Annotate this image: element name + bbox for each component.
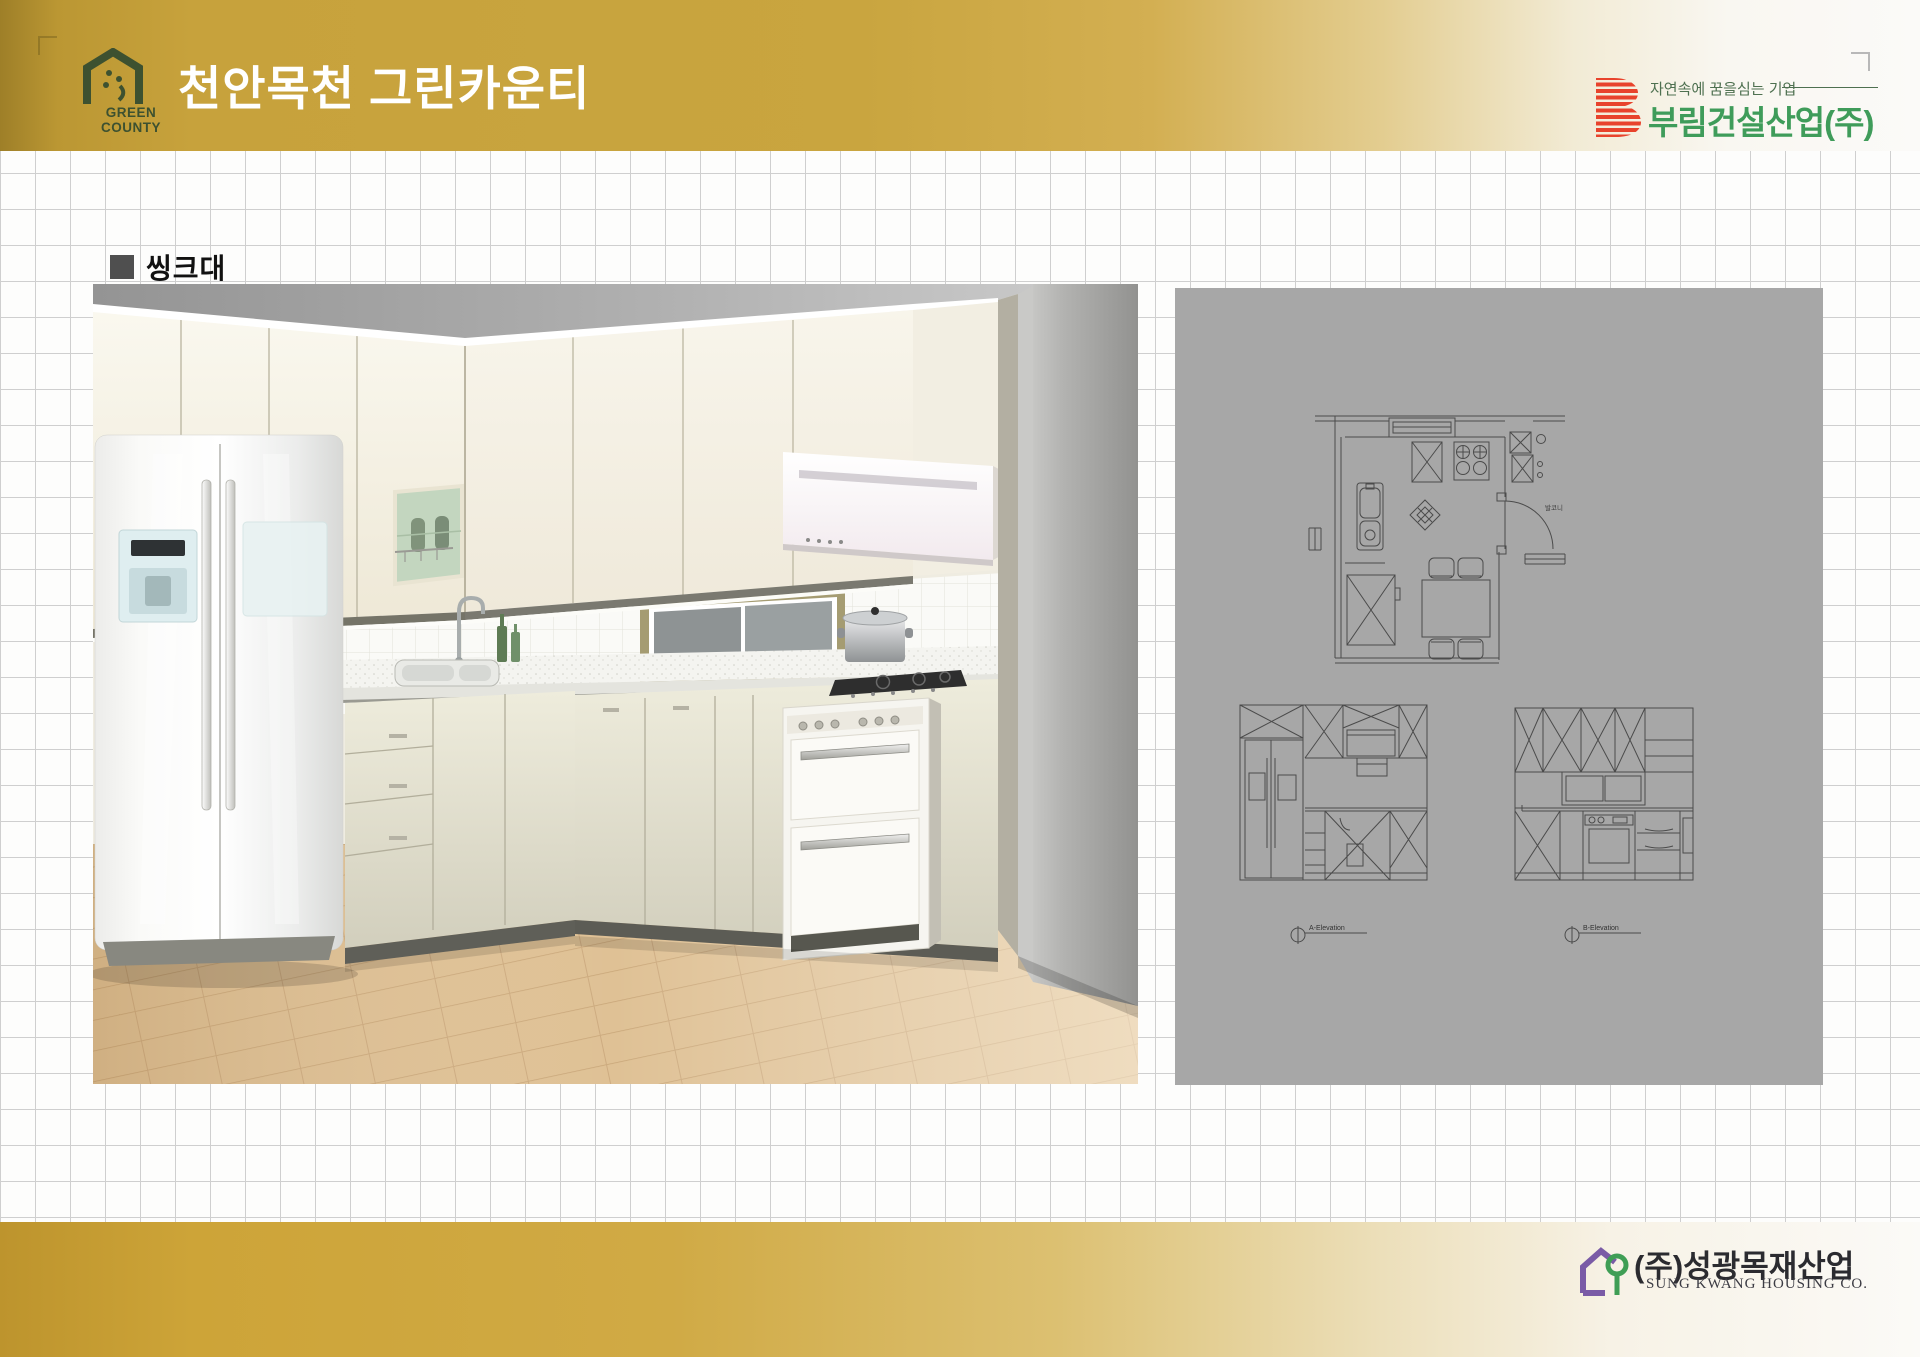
elevation-b-label: B-Elevation [1583, 925, 1619, 932]
section-label: 씽크대 [110, 252, 226, 282]
base-cabinets-left [345, 691, 575, 964]
cooking-pot [837, 607, 913, 662]
burim-company-name: 부림건설산업(주) [1648, 96, 1874, 144]
square-bullet-icon [110, 255, 134, 279]
house-outline-icon [75, 48, 151, 104]
elevation-a-label: A-Elevation [1309, 925, 1345, 932]
green-county-logo: GREEN COUNTY [75, 48, 187, 135]
sungkwang-subtitle: SUNG KWANG HOUSING CO. [1646, 1276, 1868, 1293]
burim-logo: 자연속에 꿈을심는 기업 부림건설산업(주) [1594, 74, 1884, 140]
refrigerator [93, 435, 358, 988]
red-striped-b-icon [1594, 76, 1642, 138]
sungkwang-logo: (주)성광목재산업 SUNG KWANG HOUSING CO. [1578, 1241, 1878, 1303]
kitchen-3d-rendering [93, 284, 1138, 1084]
range-hood [783, 452, 1008, 566]
oven-range-unit [783, 698, 941, 960]
floor-plan-room-label: 발코니 [1545, 503, 1563, 512]
wall-pillar [998, 284, 1138, 1018]
green-county-label: GREEN COUNTY [75, 105, 187, 135]
architectural-plan-panel: 발코니 A-Ele [1175, 288, 1823, 1085]
page-title: 천안목천 그린카운티 [178, 50, 590, 119]
purple-house-green-key-icon [1578, 1243, 1630, 1297]
crop-mark-top-left [38, 36, 57, 55]
burim-divider-line [1782, 87, 1878, 88]
presentation-slide: GREEN COUNTY 천안목천 그린카운티 자연속에 꿈을심는 기업 부림건… [0, 0, 1920, 1357]
crop-mark-top-right [1851, 52, 1870, 71]
green-glass-cabinet [395, 486, 462, 584]
section-label-text: 씽크대 [146, 247, 226, 287]
